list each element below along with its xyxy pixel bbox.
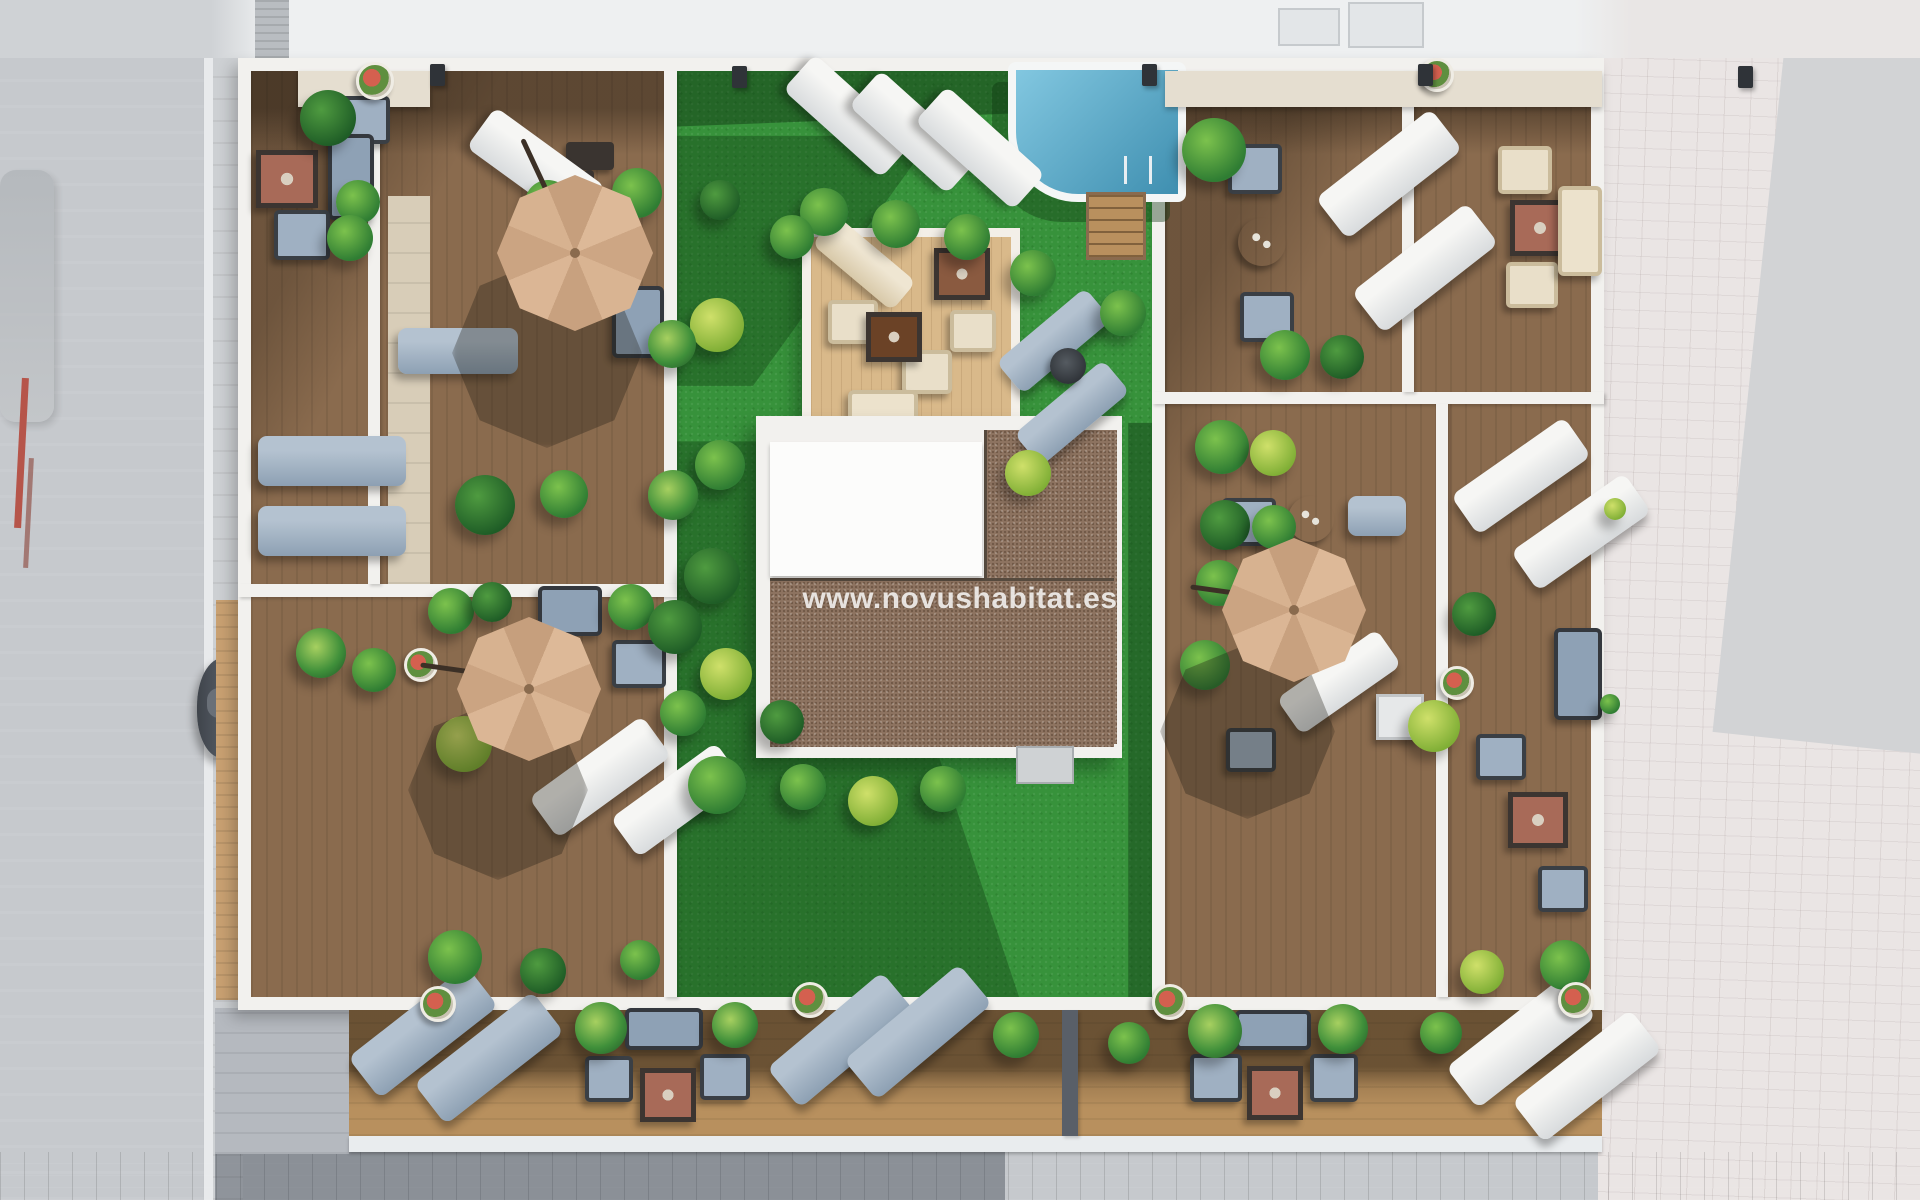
fire-bowl [1050, 348, 1086, 384]
bush [1195, 420, 1249, 474]
fire-table [256, 150, 318, 208]
bush [1320, 335, 1364, 379]
bush [352, 648, 396, 692]
flower-pot [1440, 666, 1474, 700]
palm-plant [648, 320, 696, 368]
coffee-table [866, 312, 922, 362]
outdoor-sofa [625, 1008, 703, 1050]
palm-plant [1318, 1004, 1368, 1054]
sun-lounger [258, 436, 406, 486]
rooftop-utility-box [1016, 746, 1074, 784]
wall-light [732, 66, 747, 88]
bush [993, 1012, 1039, 1058]
bush [1010, 250, 1056, 296]
pool-steps [1086, 192, 1146, 260]
outdoor-sofa [1235, 1010, 1311, 1050]
bush [1108, 1022, 1150, 1064]
bush [648, 600, 702, 654]
tree [1182, 118, 1246, 182]
palm-plant [712, 1002, 758, 1048]
wall-light [1418, 64, 1433, 86]
pergola-band [1165, 71, 1602, 107]
pool-ladder [1124, 156, 1152, 184]
curb-line [204, 0, 213, 1200]
outdoor-armchair [1190, 1054, 1242, 1102]
bush [944, 214, 990, 260]
sun-lounger [258, 506, 406, 556]
palm-plant [1188, 1004, 1242, 1058]
outdoor-sofa [1554, 628, 1602, 720]
bush [660, 690, 706, 736]
wall-light [430, 64, 445, 86]
parked-car [0, 170, 54, 422]
bush [472, 582, 512, 622]
paving-bottom-left [215, 1008, 349, 1154]
bush [780, 764, 826, 810]
palm-plant [700, 648, 752, 700]
outdoor-armchair [585, 1056, 633, 1102]
building-cast-shadow [215, 1152, 1005, 1200]
outdoor-armchair [274, 210, 330, 260]
bush [520, 948, 566, 994]
flower-pot [1558, 982, 1594, 1018]
palm-plant [1460, 950, 1504, 994]
rooftop-unit [1278, 8, 1340, 46]
flower-pot [1152, 984, 1188, 1020]
patio-umbrella [497, 175, 653, 331]
bush [1200, 500, 1250, 550]
bush [540, 470, 588, 518]
bush [700, 180, 740, 220]
plant [1604, 498, 1626, 520]
bush [695, 440, 745, 490]
flower-pot [792, 982, 828, 1018]
bush [1452, 592, 1496, 636]
flower-pot [420, 986, 456, 1022]
outdoor-sofa [1558, 186, 1602, 276]
outdoor-armchair [1476, 734, 1526, 780]
bush [872, 200, 920, 248]
fire-table [1508, 792, 1568, 848]
round-dining-table [1238, 218, 1286, 266]
fire-table [640, 1068, 696, 1122]
walkway [349, 1136, 1602, 1152]
bush [684, 548, 740, 604]
outdoor-armchair [1506, 262, 1558, 308]
bush [920, 766, 966, 812]
ground-floor-deck-edge [216, 600, 239, 1000]
wall-light [1142, 64, 1157, 86]
palm-plant [690, 298, 744, 352]
plant [1600, 694, 1620, 714]
bush [1260, 330, 1310, 380]
rooftop-unit [1348, 2, 1424, 48]
render-canvas: www.novushabitat.es [0, 0, 1920, 1200]
bush [327, 215, 373, 261]
parapet-wall [1152, 71, 1165, 997]
bush [688, 756, 746, 814]
bush [300, 90, 356, 146]
bush [770, 215, 814, 259]
fire-table-round [1288, 496, 1334, 542]
bush [1100, 290, 1146, 336]
palm-plant [1408, 700, 1460, 752]
bush [608, 584, 654, 630]
parapet-wall [1152, 392, 1604, 404]
palm-plant [296, 628, 346, 678]
palm-plant [848, 776, 898, 826]
bush [455, 475, 515, 535]
palm-plant [648, 470, 698, 520]
outdoor-armchair [1498, 146, 1552, 194]
parapet-wall [664, 71, 677, 997]
outdoor-armchair [950, 310, 996, 352]
bush [760, 700, 804, 744]
palm-plant [575, 1002, 627, 1054]
outdoor-armchair [700, 1054, 750, 1100]
watermark-text: www.novushabitat.es [800, 582, 1120, 616]
parapet-wall [1402, 71, 1414, 392]
outdoor-armchair [1538, 866, 1588, 912]
patio-umbrella [1222, 538, 1366, 682]
patio-umbrella [457, 617, 601, 761]
outdoor-armchair [1310, 1054, 1358, 1102]
terrace-divider-wall [1062, 1010, 1078, 1136]
bush [428, 930, 482, 984]
wall-light [1738, 66, 1753, 88]
palm-plant [1005, 450, 1051, 496]
flower-pot [356, 62, 394, 100]
palm-plant [1250, 430, 1296, 476]
white-flat-roof [770, 442, 982, 576]
fire-table [1247, 1066, 1303, 1120]
bush [620, 940, 660, 980]
bush [428, 588, 474, 634]
bush [1420, 1012, 1462, 1054]
sun-lounger [1348, 496, 1406, 536]
